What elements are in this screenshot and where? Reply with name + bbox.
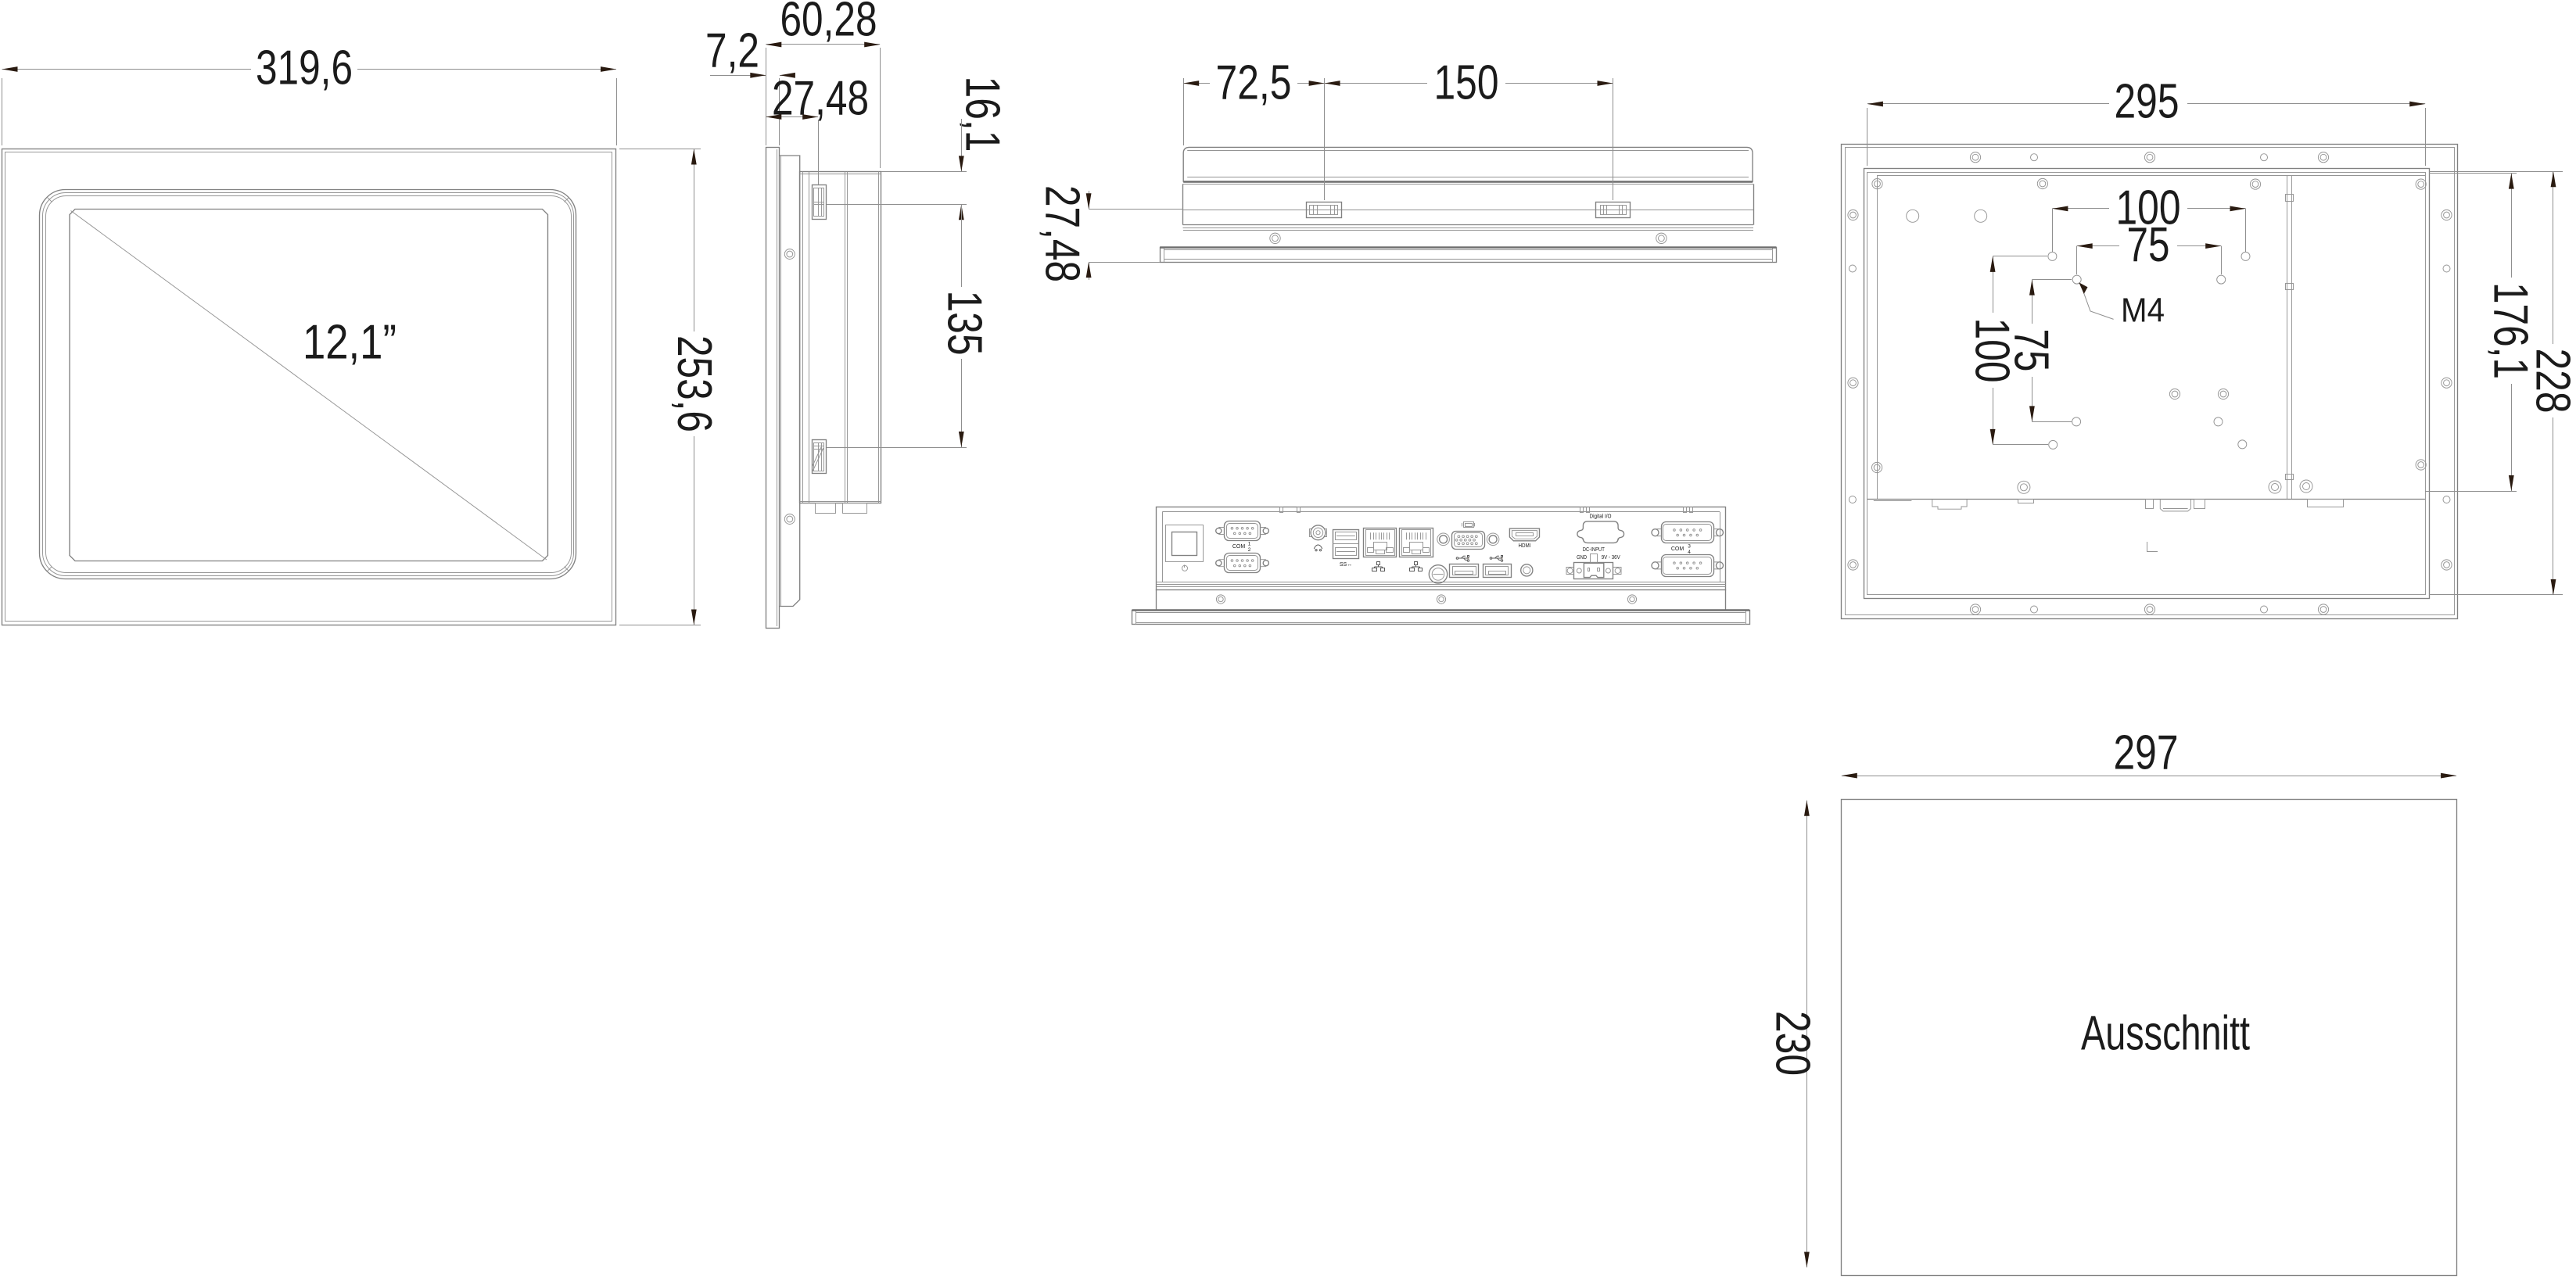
svg-text:295: 295 (2115, 75, 2180, 129)
svg-text:27,48: 27,48 (772, 72, 869, 126)
svg-text:27,48: 27,48 (1035, 185, 1089, 282)
svg-text:230: 230 (1766, 1011, 1820, 1076)
svg-text:72,5: 72,5 (1216, 56, 1292, 110)
svg-text:HDMI: HDMI (1519, 543, 1531, 549)
svg-text:297: 297 (2114, 726, 2179, 780)
svg-text:M4: M4 (2121, 292, 2165, 330)
svg-text:COM: COM (1232, 544, 1246, 550)
svg-text:2: 2 (1248, 547, 1251, 553)
svg-text:4: 4 (1688, 550, 1691, 555)
svg-text:9V - 36V: 9V - 36V (1602, 555, 1620, 561)
svg-text:75: 75 (2127, 218, 2170, 272)
svg-text:75: 75 (2004, 329, 2058, 372)
svg-text:SS↔: SS↔ (1340, 562, 1352, 568)
svg-text:253,6: 253,6 (667, 335, 721, 432)
svg-text:Digital I/O: Digital I/O (1590, 514, 1613, 520)
svg-text:COM: COM (1671, 546, 1684, 552)
svg-text:135: 135 (938, 291, 992, 356)
svg-text:Ausschnitt: Ausschnitt (2081, 1007, 2250, 1061)
svg-text:319,6: 319,6 (256, 41, 353, 95)
svg-text:1: 1 (1248, 542, 1251, 547)
svg-text:7,2: 7,2 (705, 24, 759, 78)
svg-text:228: 228 (2526, 349, 2576, 414)
svg-text:DC-INPUT: DC-INPUT (1583, 547, 1606, 553)
svg-text:150: 150 (1434, 56, 1499, 110)
svg-text:GND: GND (1577, 555, 1587, 561)
svg-text:12,1”: 12,1” (303, 316, 396, 370)
svg-text:60,28: 60,28 (780, 0, 877, 47)
svg-text:16,1: 16,1 (956, 77, 1010, 152)
svg-text:3: 3 (1688, 544, 1691, 550)
